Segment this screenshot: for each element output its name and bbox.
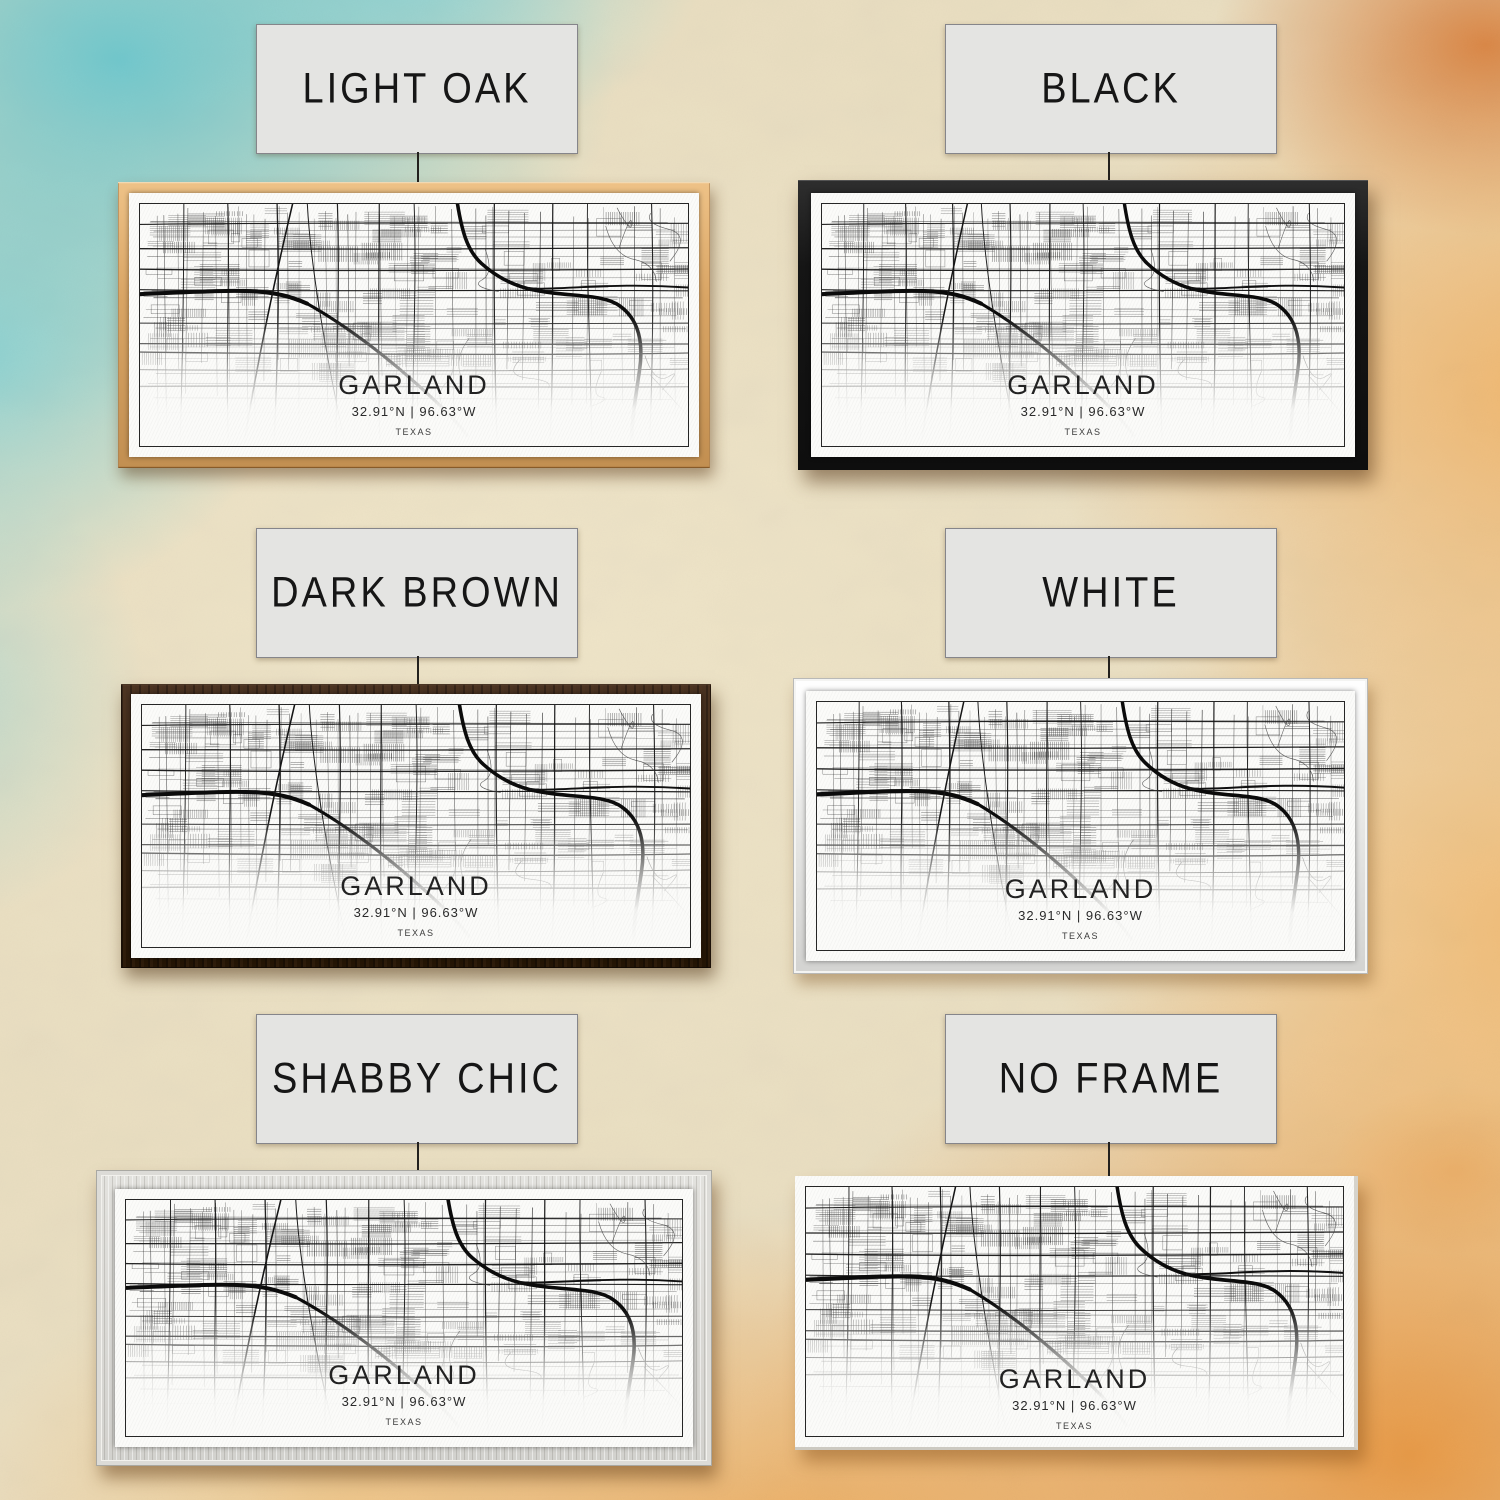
frame-option-label-text: DARK BROWN xyxy=(271,569,563,617)
label-connector-line xyxy=(417,152,419,182)
state-name: TEXAS xyxy=(131,928,701,938)
frame-option-label-text: LIGHT OAK xyxy=(302,65,531,113)
state-name: TEXAS xyxy=(806,931,1355,941)
state-name: TEXAS xyxy=(129,427,699,437)
print-caption: GARLAND 32.91°N | 96.63°W TEXAS xyxy=(115,1360,693,1427)
print-caption: GARLAND 32.91°N | 96.63°W TEXAS xyxy=(131,871,701,938)
map-print: GARLAND 32.91°N | 96.63°W TEXAS xyxy=(129,193,699,457)
frame-option-label-light-oak[interactable]: LIGHT OAK xyxy=(256,24,578,154)
framed-print-light-oak[interactable]: GARLAND 32.91°N | 96.63°W TEXAS xyxy=(118,182,710,468)
city-coordinates: 32.91°N | 96.63°W xyxy=(115,1394,693,1409)
framed-print-dark-brown[interactable]: GARLAND 32.91°N | 96.63°W TEXAS xyxy=(121,684,711,968)
state-name: TEXAS xyxy=(115,1417,693,1427)
map-print: GARLAND 32.91°N | 96.63°W TEXAS xyxy=(811,193,1355,457)
label-connector-line xyxy=(417,1142,419,1170)
map-print: GARLAND 32.91°N | 96.63°W TEXAS xyxy=(795,1176,1358,1450)
print-caption: GARLAND 32.91°N | 96.63°W TEXAS xyxy=(806,874,1355,941)
frame-option-label-dark-brown[interactable]: DARK BROWN xyxy=(256,528,578,658)
city-name: GARLAND xyxy=(129,370,699,401)
label-connector-line xyxy=(1108,1142,1110,1176)
state-name: TEXAS xyxy=(811,427,1355,437)
city-name: GARLAND xyxy=(115,1360,693,1391)
city-coordinates: 32.91°N | 96.63°W xyxy=(131,905,701,920)
frame-option-label-text: WHITE xyxy=(1042,569,1179,617)
city-coordinates: 32.91°N | 96.63°W xyxy=(795,1398,1354,1413)
state-name: TEXAS xyxy=(795,1421,1354,1431)
city-name: GARLAND xyxy=(795,1364,1354,1395)
print-caption: GARLAND 32.91°N | 96.63°W TEXAS xyxy=(129,370,699,437)
city-coordinates: 32.91°N | 96.63°W xyxy=(806,908,1355,923)
print-caption: GARLAND 32.91°N | 96.63°W TEXAS xyxy=(795,1364,1354,1431)
frame-option-label-text: BLACK xyxy=(1041,65,1181,113)
map-print: GARLAND 32.91°N | 96.63°W TEXAS xyxy=(115,1189,693,1447)
map-print: GARLAND 32.91°N | 96.63°W TEXAS xyxy=(806,691,1355,961)
frame-option-label-no-frame[interactable]: NO FRAME xyxy=(945,1014,1277,1144)
city-coordinates: 32.91°N | 96.63°W xyxy=(129,404,699,419)
print-caption: GARLAND 32.91°N | 96.63°W TEXAS xyxy=(811,370,1355,437)
framed-print-black[interactable]: GARLAND 32.91°N | 96.63°W TEXAS xyxy=(798,180,1368,470)
label-connector-line xyxy=(1108,152,1110,180)
label-connector-line xyxy=(1108,656,1110,678)
framed-print-shabby-chic[interactable]: GARLAND 32.91°N | 96.63°W TEXAS xyxy=(96,1170,712,1466)
frame-option-label-shabby-chic[interactable]: SHABBY CHIC xyxy=(256,1014,578,1144)
frame-option-label-text: SHABBY CHIC xyxy=(272,1055,562,1103)
city-name: GARLAND xyxy=(806,874,1355,905)
frame-option-label-black[interactable]: BLACK xyxy=(945,24,1277,154)
frame-option-label-text: NO FRAME xyxy=(999,1055,1224,1103)
city-coordinates: 32.91°N | 96.63°W xyxy=(811,404,1355,419)
city-name: GARLAND xyxy=(811,370,1355,401)
product-mockup: LIGHT OAK GARLAND 32.91°N | 96.63°W TEXA… xyxy=(0,0,1500,1500)
unframed-print-no-frame[interactable]: GARLAND 32.91°N | 96.63°W TEXAS xyxy=(795,1176,1358,1450)
frame-option-label-white[interactable]: WHITE xyxy=(945,528,1277,658)
label-connector-line xyxy=(417,656,419,684)
city-name: GARLAND xyxy=(131,871,701,902)
framed-print-white[interactable]: GARLAND 32.91°N | 96.63°W TEXAS xyxy=(793,678,1368,974)
map-print: GARLAND 32.91°N | 96.63°W TEXAS xyxy=(131,694,701,958)
